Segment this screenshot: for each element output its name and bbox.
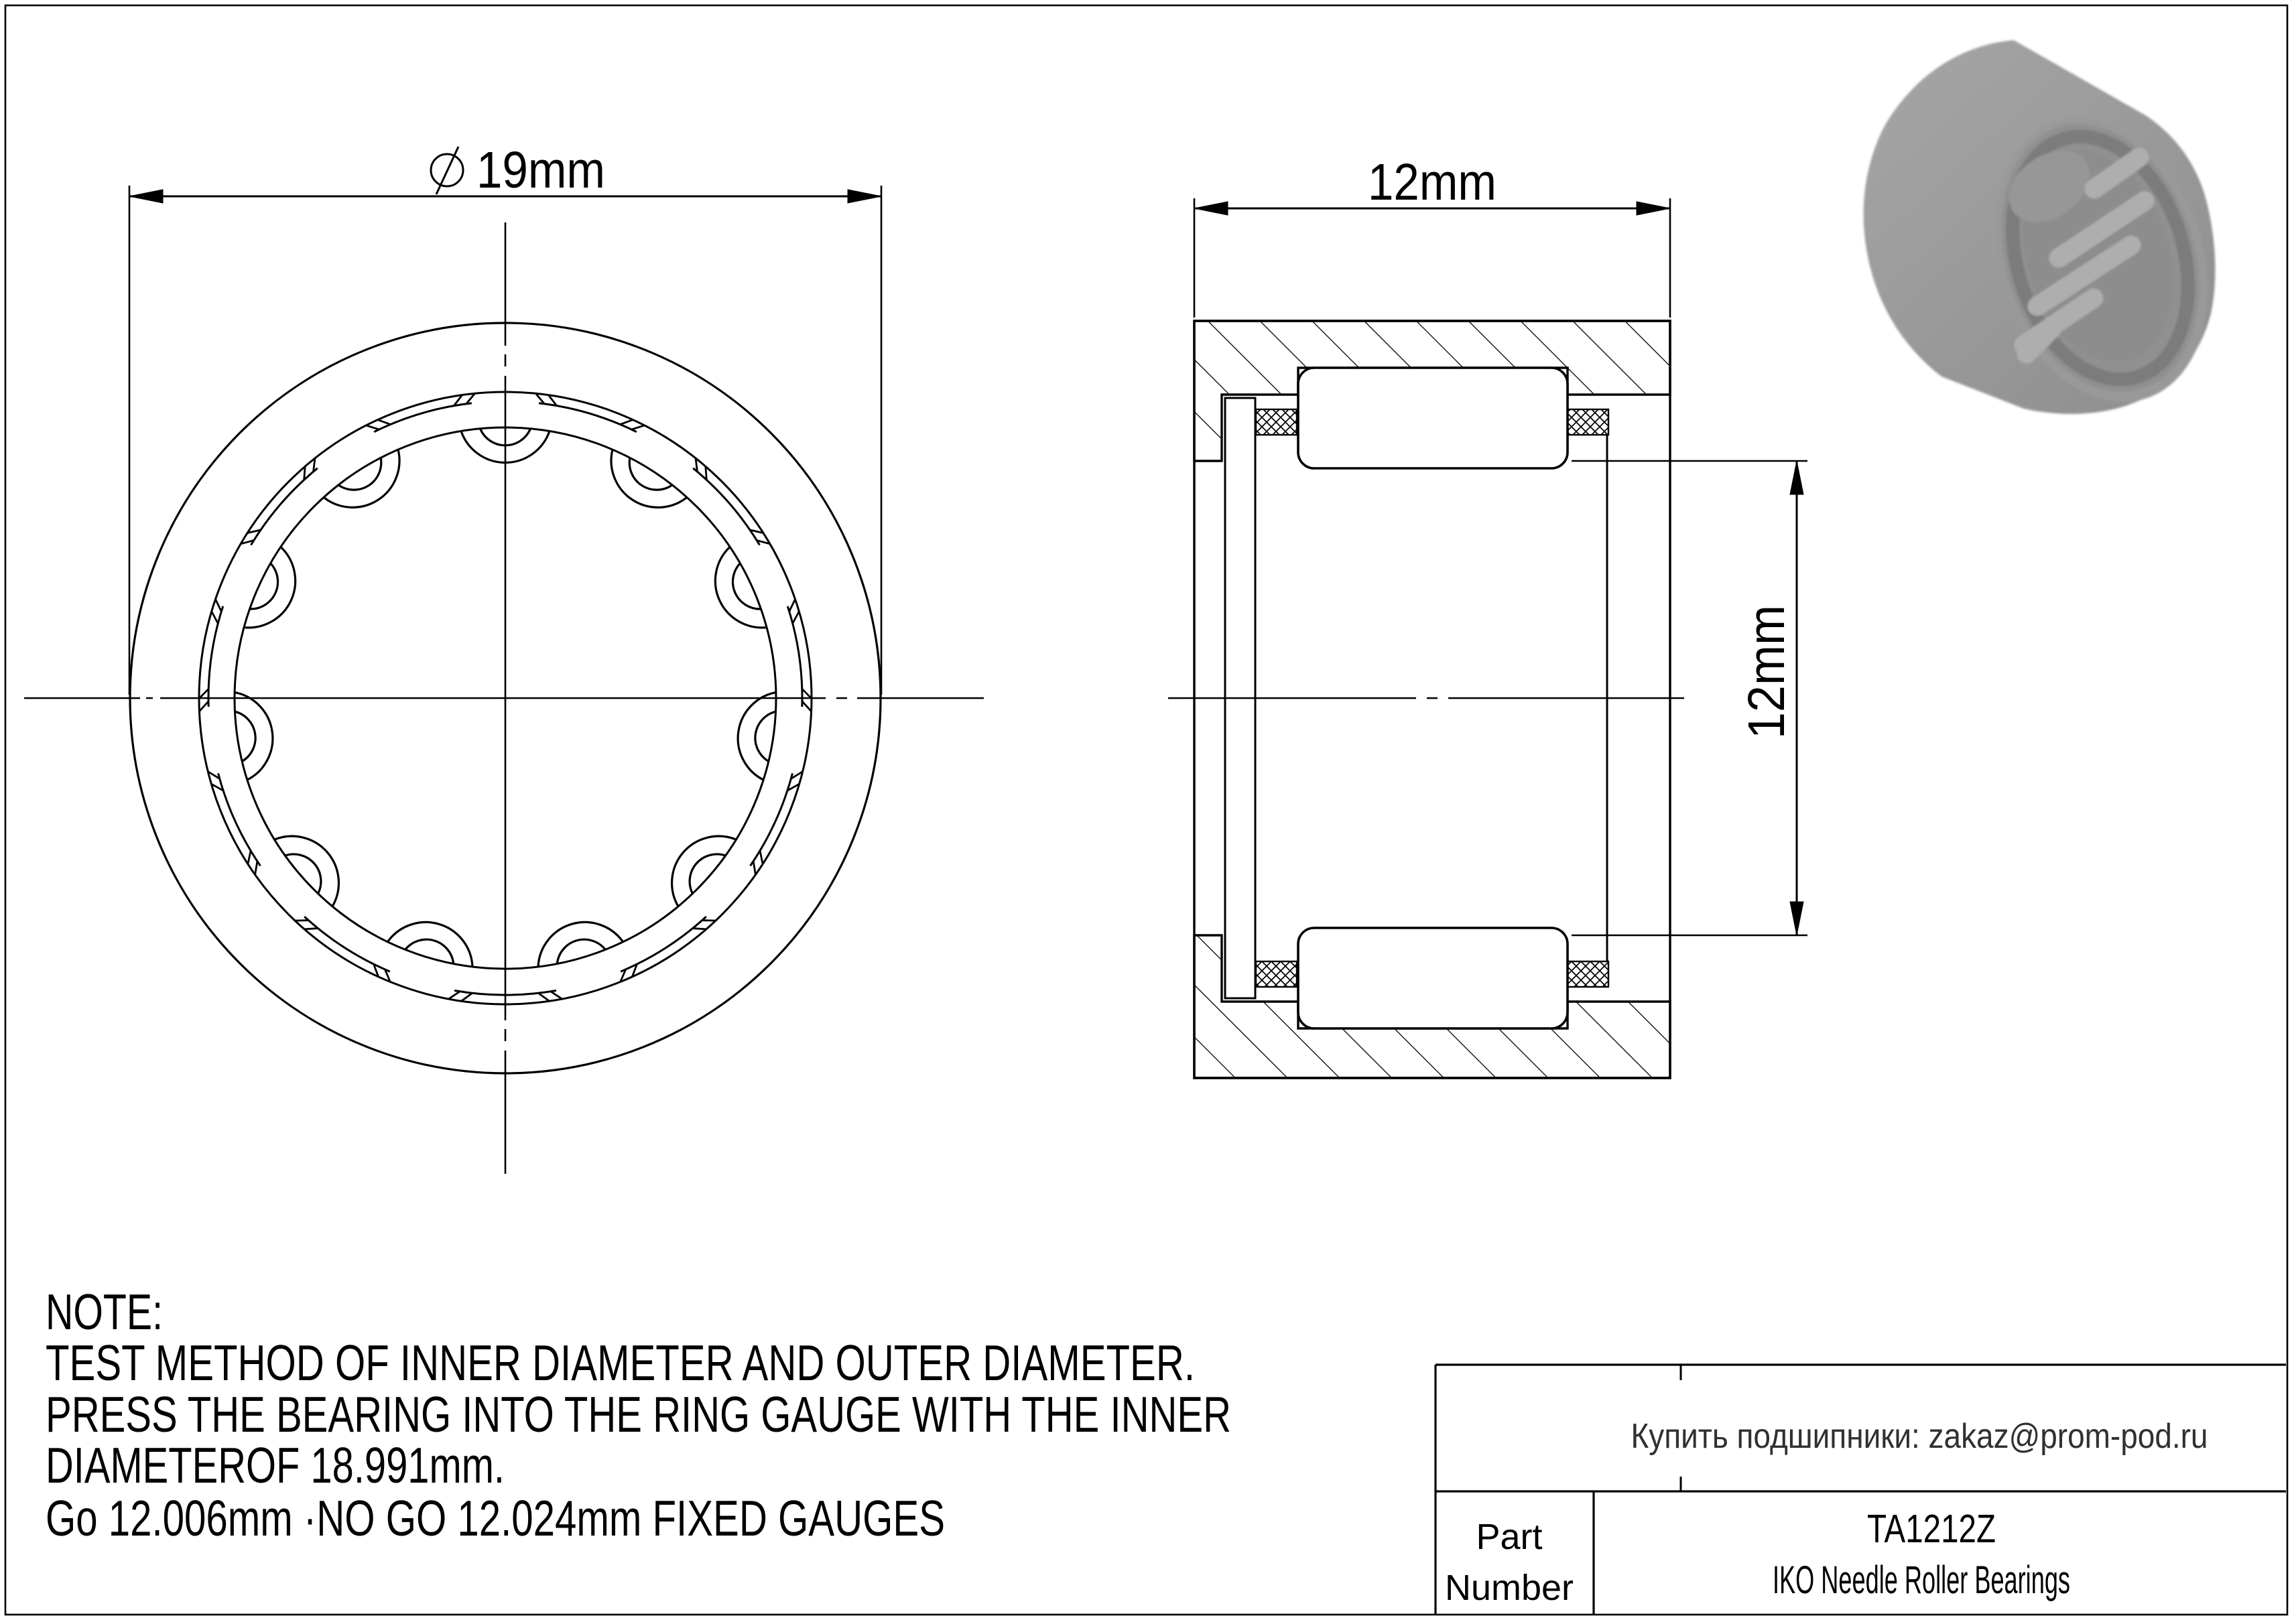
svg-text:Купить подшипники: zakaz@prom-: Купить подшипники: zakaz@prom-pod.ru (1631, 1417, 2208, 1456)
svg-text:12mm: 12mm (1368, 153, 1496, 211)
svg-text:TA1212Z: TA1212Z (1867, 1507, 1996, 1551)
svg-text:PRESS THE BEARING INTO THE RIN: PRESS THE BEARING INTO THE RING GAUGE WI… (46, 1386, 1231, 1442)
svg-text:NOTE:: NOTE: (46, 1284, 163, 1340)
svg-text:19mm: 19mm (476, 141, 605, 199)
svg-text:Go 12.006mm ·NO GO 12.024mm FI: Go 12.006mm ·NO GO 12.024mm FIXED GAUGES (46, 1490, 945, 1546)
svg-text:IKO Needle Roller Bearings: IKO Needle Roller Bearings (1773, 1558, 2070, 1602)
svg-text:Part: Part (1476, 1517, 1542, 1557)
svg-text:12mm: 12mm (1738, 605, 1795, 739)
svg-text:TEST METHOD OF INNER DIAMETER: TEST METHOD OF INNER DIAMETER AND OUTER … (46, 1335, 1195, 1391)
svg-text:DIAMETEROF 18.991mm.: DIAMETEROF 18.991mm. (46, 1437, 505, 1493)
svg-text:Number: Number (1445, 1568, 1574, 1608)
